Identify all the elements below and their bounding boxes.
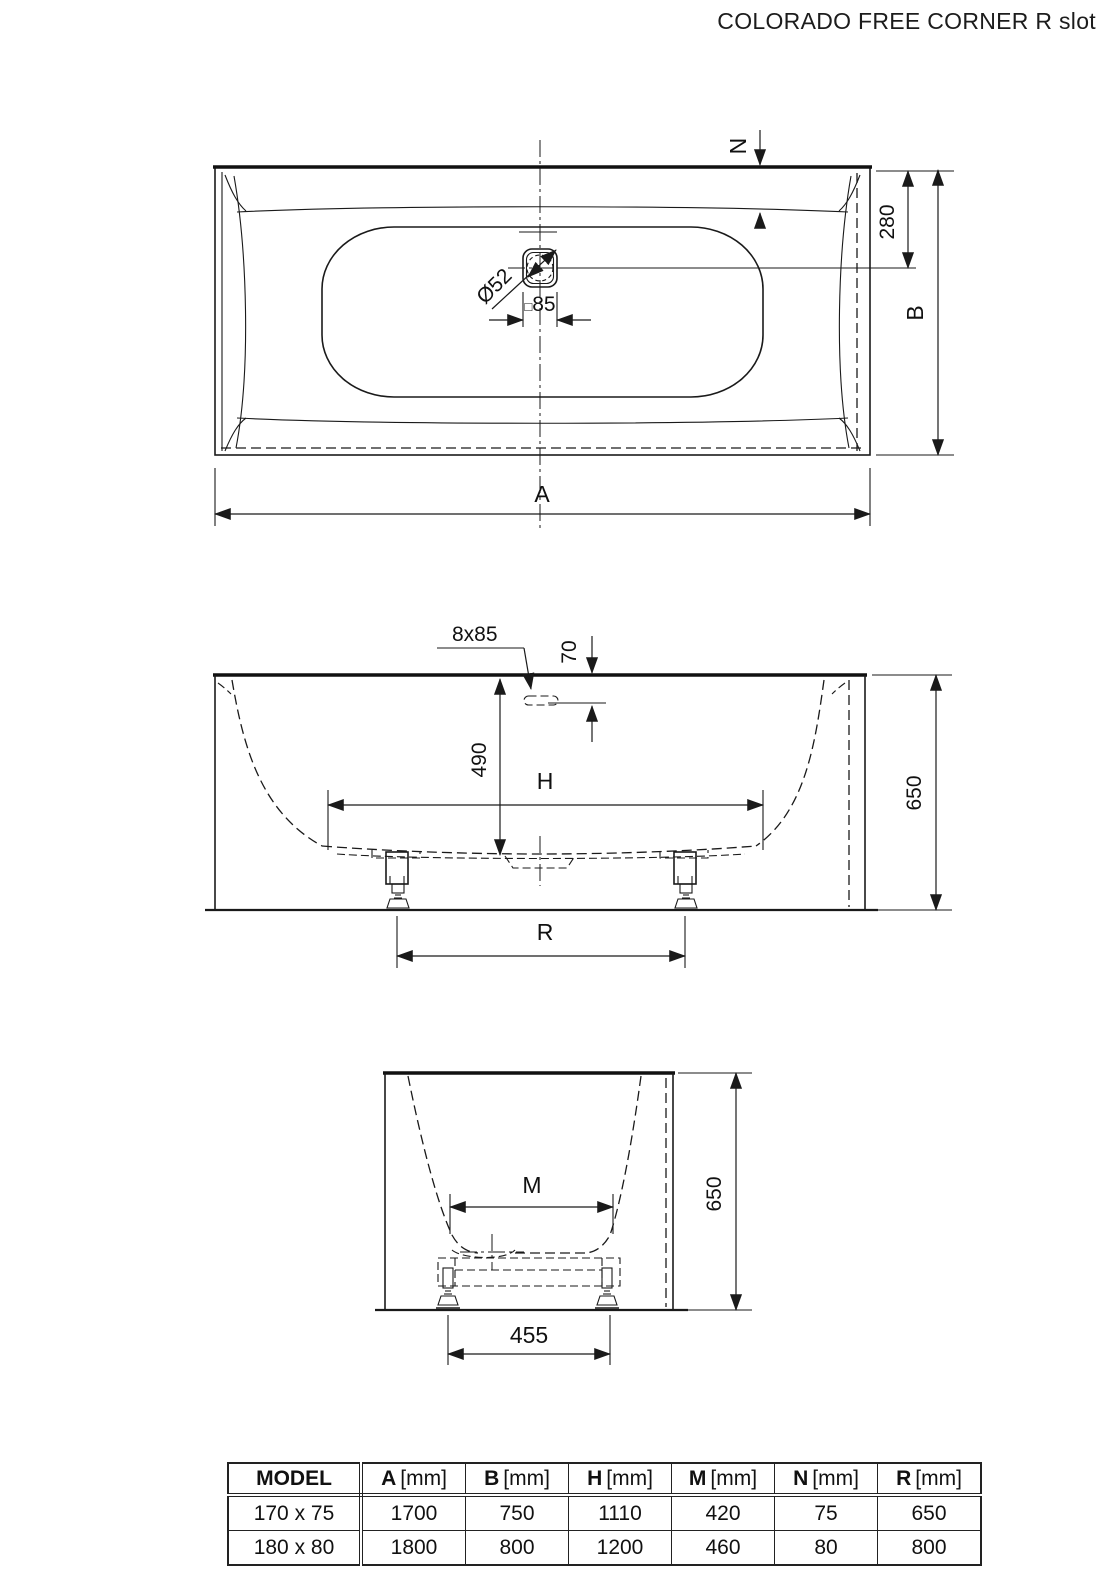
cell-n: 80 xyxy=(775,1531,878,1566)
header-unit: [mm] xyxy=(503,1467,550,1490)
cell-a: 1800 xyxy=(361,1531,466,1566)
dim-650-end: 650 xyxy=(678,1073,752,1310)
header-key: A xyxy=(381,1467,396,1490)
dim-m: M xyxy=(450,1172,613,1234)
dim-n: N xyxy=(725,130,760,226)
drain-bowl xyxy=(452,1250,515,1258)
table-row: 180 x 80 1800 800 1200 460 80 800 xyxy=(228,1531,981,1566)
header-key: N xyxy=(793,1467,808,1490)
cell-model: 180 x 80 xyxy=(228,1531,361,1566)
dim-70: 70 xyxy=(548,636,606,742)
foot-left-side xyxy=(386,852,409,908)
header-unit: [mm] xyxy=(710,1467,757,1490)
dim-r-label: R xyxy=(537,919,554,945)
header-a: A[mm] xyxy=(361,1463,466,1495)
square-symbol: □ xyxy=(524,299,532,314)
side-view: 8x85 70 490 H xyxy=(205,623,952,968)
dim-70-label: 70 xyxy=(558,640,581,663)
header-unit: [mm] xyxy=(606,1467,653,1490)
dim-490: 490 xyxy=(468,679,500,855)
header-key: B xyxy=(484,1467,499,1490)
header-r: R[mm] xyxy=(878,1463,982,1495)
header-key: H xyxy=(587,1467,602,1490)
tub-profile-side xyxy=(218,680,845,886)
header-unit: [mm] xyxy=(400,1467,447,1490)
dim-650-side: 650 xyxy=(872,675,952,910)
dim-h-label: H xyxy=(537,768,554,794)
square-85-label: □85 xyxy=(524,293,555,316)
header-key: R xyxy=(896,1467,911,1490)
dim-h: H xyxy=(328,768,763,850)
cell-model: 170 x 75 xyxy=(228,1495,361,1531)
cell-r: 800 xyxy=(878,1531,982,1566)
cell-r: 650 xyxy=(878,1495,982,1531)
foot-right-end xyxy=(595,1268,619,1308)
cell-m: 460 xyxy=(672,1531,775,1566)
dim-a: A xyxy=(215,468,870,526)
dim-280: 280 xyxy=(876,171,954,268)
cell-h: 1110 xyxy=(569,1495,672,1531)
dim-m-label: M xyxy=(522,1172,541,1198)
cell-a: 1700 xyxy=(361,1495,466,1531)
dim-490-label: 490 xyxy=(468,742,491,777)
dim-650-end-label: 650 xyxy=(703,1176,726,1211)
header-m: M[mm] xyxy=(672,1463,775,1495)
dimension-table: MODEL A[mm] B[mm] H[mm] M[mm] N[mm] R[mm… xyxy=(227,1462,982,1566)
foot-left-end xyxy=(436,1268,460,1308)
support-frame xyxy=(438,1258,620,1286)
diameter-label: Ø52 xyxy=(472,264,516,308)
header-model: MODEL xyxy=(228,1463,361,1495)
header-n: N[mm] xyxy=(775,1463,878,1495)
header-unit: [mm] xyxy=(812,1467,859,1490)
dim-280-label: 280 xyxy=(876,204,899,239)
table-row: 170 x 75 1700 750 1110 420 75 650 xyxy=(228,1495,981,1531)
dim-r: R xyxy=(397,916,685,968)
drawing-canvas: Ø52 □85 N 280 B xyxy=(0,0,1110,1570)
dim-455: 455 xyxy=(448,1315,610,1365)
header-b: B[mm] xyxy=(466,1463,569,1495)
top-view: Ø52 □85 N 280 B xyxy=(213,130,954,530)
dim-455-label: 455 xyxy=(510,1322,548,1348)
header-unit: [mm] xyxy=(915,1467,962,1490)
slot-count-label: 8x85 xyxy=(452,623,498,646)
square-value: 85 xyxy=(532,293,555,316)
cell-h: 1200 xyxy=(569,1531,672,1566)
header-h: H[mm] xyxy=(569,1463,672,1495)
cell-b: 750 xyxy=(466,1495,569,1531)
dim-b-label: B xyxy=(902,305,928,320)
header-key: M xyxy=(689,1467,707,1490)
technical-drawing-page: COLORADO FREE CORNER R slot xyxy=(0,0,1110,1570)
dim-650-side-label: 650 xyxy=(903,775,926,810)
dim-a-label: A xyxy=(534,481,550,507)
label-8x85: 8x85 xyxy=(437,623,531,689)
cell-b: 800 xyxy=(466,1531,569,1566)
cell-n: 75 xyxy=(775,1495,878,1531)
dim-n-label: N xyxy=(725,138,751,155)
table-header-row: MODEL A[mm] B[mm] H[mm] M[mm] N[mm] R[mm… xyxy=(228,1463,981,1495)
end-view: M 650 455 xyxy=(375,1073,752,1365)
foot-right-side xyxy=(674,852,697,908)
cell-m: 420 xyxy=(672,1495,775,1531)
mounting-slot xyxy=(524,696,558,705)
header-key: MODEL xyxy=(256,1467,332,1490)
